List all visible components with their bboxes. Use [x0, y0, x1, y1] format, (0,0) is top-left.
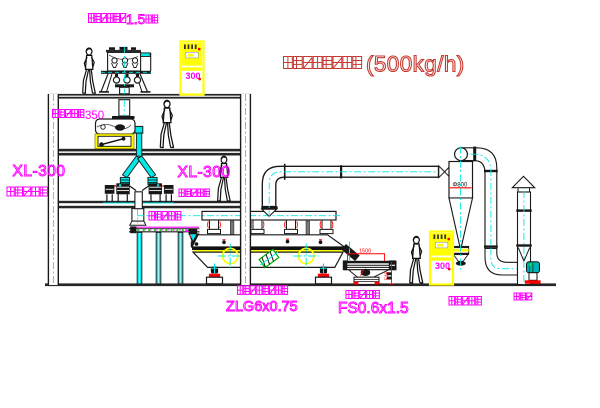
- svg-text:ZLG6x0.75: ZLG6x0.75: [226, 299, 298, 315]
- svg-text:XL-300: XL-300: [178, 164, 231, 181]
- svg-text:546: 546: [385, 271, 391, 280]
- svg-text:XL-300: XL-300: [13, 163, 66, 180]
- svg-text:300: 300: [186, 71, 201, 81]
- svg-text:(500kg/h): (500kg/h): [366, 52, 465, 77]
- svg-text:1500: 1500: [359, 249, 371, 255]
- svg-text:300: 300: [435, 261, 450, 271]
- svg-text:FS0.6x1.5: FS0.6x1.5: [338, 300, 409, 317]
- svg-text:1.5: 1.5: [126, 11, 146, 27]
- svg-text:350: 350: [85, 110, 104, 122]
